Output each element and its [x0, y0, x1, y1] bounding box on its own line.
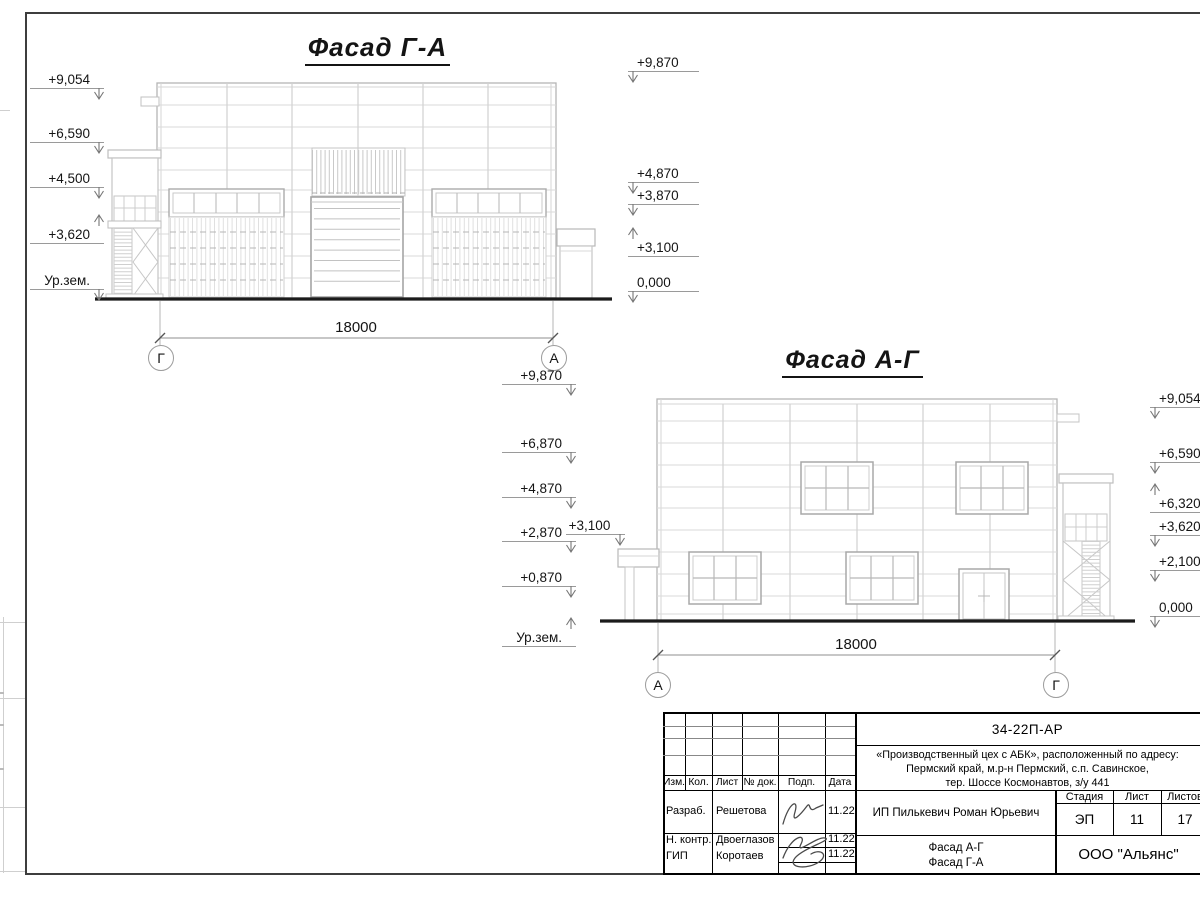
- elevation-mark: +3,620: [1150, 519, 1200, 536]
- elevation-mark: +9,054: [1150, 391, 1200, 408]
- elevation-arrow-icon: [563, 384, 579, 397]
- elevation-value: +3,620: [48, 227, 90, 242]
- elevation-mark: +9,870: [502, 368, 576, 385]
- facade-ag-title: Фасад А-Г: [765, 346, 940, 375]
- elevation-mark: +6,590: [1150, 446, 1200, 463]
- elevation-value: +9,054: [48, 72, 90, 87]
- elevation-value: +4,870: [637, 166, 679, 181]
- elevation-mark: +3,870: [628, 188, 699, 205]
- row-role: ГИП: [666, 850, 688, 862]
- row-name: Коротаев: [716, 850, 764, 862]
- elevation-mark: +0,870: [502, 570, 576, 587]
- elevation-mark: +3,100: [566, 518, 625, 535]
- col-header-data: Дата: [825, 775, 855, 790]
- elevation-value: +0,870: [520, 570, 562, 585]
- sheet-frame-left: [25, 12, 27, 875]
- col-header-list: Лист: [712, 775, 742, 790]
- elevation-value: +2,870: [520, 525, 562, 540]
- dimension-label: 18000: [300, 319, 412, 337]
- organization-name: ООО "Альянс": [1057, 836, 1200, 873]
- elevation-mark: +4,870: [628, 166, 699, 183]
- elevation-arrow-icon: [563, 616, 579, 629]
- elevation-value: +6,590: [1159, 446, 1200, 461]
- elevation-value: +6,870: [520, 436, 562, 451]
- elevation-arrow-icon: [1147, 462, 1163, 475]
- elevation-mark: +3,620: [30, 227, 104, 244]
- row-name: Решетова: [716, 805, 766, 817]
- elevation-arrow-icon: [91, 142, 107, 155]
- elevation-value: +3,100: [569, 518, 611, 533]
- elevation-mark: 0,000: [1150, 600, 1200, 617]
- sheets-value: 17: [1161, 804, 1200, 834]
- dimension-label: 18000: [800, 636, 912, 654]
- elevation-mark: +2,100: [1150, 554, 1200, 571]
- facade-ga-drawing: [80, 75, 625, 355]
- sheet-value: 11: [1113, 804, 1161, 834]
- elevation-mark: +6,870: [502, 436, 576, 453]
- sheets-label: Листов: [1161, 790, 1200, 803]
- elevation-arrow-icon: [625, 226, 641, 239]
- elevation-mark: Ур.зем.: [502, 630, 576, 647]
- elevation-value: +9,870: [637, 55, 679, 70]
- col-header-ndok: № док.: [742, 775, 778, 790]
- elevation-value: +9,870: [520, 368, 562, 383]
- elevation-arrow-icon: [563, 497, 579, 510]
- client-name: ИП Пилькевич Роман Юрьевич: [857, 791, 1055, 834]
- elevation-value: +4,500: [48, 171, 90, 186]
- elevation-arrow-icon: [91, 88, 107, 101]
- stage-value: ЭП: [1056, 804, 1113, 834]
- elevation-arrow-icon: [1147, 482, 1163, 495]
- elevation-value: +3,100: [637, 240, 679, 255]
- elevation-value: +9,054: [1159, 391, 1200, 406]
- elevation-value: +6,590: [48, 126, 90, 141]
- facade-ag-drawing: [590, 392, 1145, 677]
- sheet-content: Фасад А-Г Фасад Г-А: [857, 838, 1055, 877]
- elevation-arrow-icon: [91, 289, 107, 302]
- elevation-arrow-icon: [625, 71, 641, 84]
- axis-bubble: Г: [148, 345, 174, 371]
- row-name: Двоеглазов: [716, 834, 774, 846]
- elevation-value: +4,870: [520, 481, 562, 496]
- row-role: Н. контр.: [666, 834, 711, 846]
- elevation-value: Ур.зем.: [516, 630, 562, 645]
- col-header-izm: Изм.: [663, 775, 685, 790]
- axis-bubble: А: [645, 672, 671, 698]
- elevation-arrow-icon: [612, 534, 628, 547]
- elevation-arrow-icon: [1147, 407, 1163, 420]
- elevation-mark: Ур.зем.: [30, 273, 104, 290]
- facade-ga-title: Фасад Г-А: [285, 32, 470, 63]
- elevation-arrow-icon: [91, 213, 107, 226]
- col-header-podp: Подп.: [778, 775, 825, 790]
- doc-number: 34-22П-АР: [855, 714, 1200, 745]
- elevation-mark: +4,870: [502, 481, 576, 498]
- row-role: Разраб.: [666, 805, 706, 817]
- elevation-value: 0,000: [637, 275, 671, 290]
- sheet-label: Лист: [1113, 790, 1161, 803]
- signature: [775, 792, 833, 832]
- elevation-value: +3,620: [1159, 519, 1200, 534]
- elevation-arrow-icon: [91, 187, 107, 200]
- elevation-mark: +3,100: [628, 240, 699, 257]
- elevation-arrow-icon: [563, 452, 579, 465]
- elevation-mark: 0,000: [628, 275, 699, 292]
- elevation-mark: +6,320: [1150, 496, 1200, 513]
- drawing-sheet: { "drawing": { "facade_ga": { "title": "…: [0, 0, 1200, 900]
- signature: [773, 828, 845, 874]
- elevation-mark: +4,500: [30, 171, 104, 188]
- elevation-value: Ур.зем.: [44, 273, 90, 288]
- elevation-arrow-icon: [625, 204, 641, 217]
- elevation-mark: +6,590: [30, 126, 104, 143]
- elevation-value: +3,870: [637, 188, 679, 203]
- elevation-value: +6,320: [1159, 496, 1200, 511]
- elevation-mark: +9,870: [628, 55, 699, 72]
- elevation-arrow-icon: [1147, 616, 1163, 629]
- axis-bubble: Г: [1043, 672, 1069, 698]
- elevation-arrow-icon: [563, 541, 579, 554]
- elevation-arrow-icon: [1147, 535, 1163, 548]
- col-header-kol: Кол.: [685, 775, 712, 790]
- elevation-arrow-icon: [1147, 570, 1163, 583]
- elevation-arrow-icon: [625, 291, 641, 304]
- sheet-frame-top: [25, 12, 1200, 14]
- elevation-mark: +9,054: [30, 72, 104, 89]
- elevation-mark: +2,870: [502, 525, 576, 542]
- elevation-arrow-icon: [563, 586, 579, 599]
- elevation-value: 0,000: [1159, 600, 1193, 615]
- project-description: «Производственный цех с АБК», расположен…: [855, 746, 1200, 792]
- stage-label: Стадия: [1056, 790, 1113, 803]
- elevation-value: +2,100: [1159, 554, 1200, 569]
- title-block: 34-22П-АР «Производственный цех с АБК», …: [663, 712, 1200, 875]
